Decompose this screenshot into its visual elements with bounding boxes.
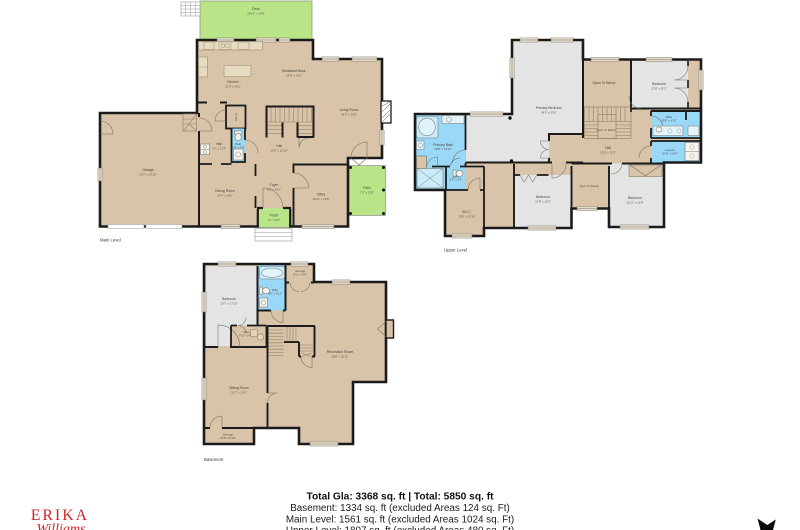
svg-text:15'0" x 16'1": 15'0" x 16'1" [225, 85, 241, 89]
svg-text:Basement: 1334 sq. ft (exclude: Basement: 1334 sq. ft (excluded Areas 12… [290, 503, 510, 514]
svg-text:24'0" x 22'6": 24'0" x 22'6" [541, 111, 557, 115]
svg-text:Basement: Basement [204, 457, 224, 462]
svg-text:Living Room: Living Room [340, 108, 359, 112]
svg-text:12'8" x 11'5": 12'8" x 11'5" [600, 151, 616, 155]
svg-text:Sitting Room: Sitting Room [229, 386, 249, 390]
svg-text:Open To Below: Open To Below [596, 128, 616, 132]
svg-text:Recreation Room: Recreation Room [327, 350, 354, 354]
svg-text:21'7" x 13'9": 21'7" x 13'9" [231, 391, 247, 395]
svg-text:12'4" x 14'6": 12'4" x 14'6" [217, 194, 233, 198]
svg-text:19'2" x 23'9": 19'2" x 23'9" [341, 113, 357, 117]
svg-text:Hall: Hall [276, 144, 282, 148]
svg-text:26'10" x 13'8": 26'10" x 13'8" [247, 12, 264, 16]
svg-text:Breakfast Nook: Breakfast Nook [282, 69, 305, 73]
svg-text:W.I.C.: W.I.C. [462, 210, 471, 214]
svg-text:12'8" x 13'0": 12'8" x 13'0" [535, 200, 551, 204]
svg-text:8'5" x 9'10": 8'5" x 9'10" [267, 188, 281, 192]
svg-text:Office: Office [317, 193, 326, 197]
svg-text:Main Level: 1561 sq. ft (exclu: Main Level: 1561 sq. ft (excluded Areas … [286, 515, 514, 526]
svg-text:Upper Level: 1807 sq. ft (excl: Upper Level: 1807 sq. ft (excluded Areas… [286, 526, 514, 530]
svg-text:25'8" x 30'11": 25'8" x 30'11" [331, 355, 348, 359]
svg-text:Primary Bedroom: Primary Bedroom [536, 106, 563, 110]
svg-text:Bedroom: Bedroom [222, 297, 236, 301]
svg-text:10'8" x 2'04": 10'8" x 2'04" [662, 152, 678, 156]
svg-text:10'7" x 17'10": 10'7" x 17'10" [220, 302, 237, 306]
svg-text:Open To Below: Open To Below [593, 81, 616, 85]
svg-text:7'1" x 6'2": 7'1" x 6'2" [268, 218, 281, 222]
svg-text:Main Level: Main Level [100, 238, 121, 243]
svg-text:Williams: Williams [36, 522, 86, 530]
svg-text:21'2" x 24'10": 21'2" x 24'10" [139, 173, 156, 177]
svg-text:Dining Room: Dining Room [215, 189, 235, 193]
svg-text:Kitchen: Kitchen [227, 80, 238, 84]
svg-text:10'8" x 16'10": 10'8" x 16'10" [434, 147, 451, 151]
svg-text:5'0" x 7'6": 5'0" x 7'6" [232, 146, 245, 150]
svg-text:Hall: Hall [216, 142, 222, 146]
svg-text:5'11" x 3'9": 5'11" x 3'9" [293, 273, 307, 277]
svg-text:13'0" x 12'10": 13'0" x 12'10" [270, 149, 287, 153]
svg-text:Deck: Deck [252, 7, 260, 11]
svg-text:Upper Level: Upper Level [444, 248, 467, 253]
svg-text:11'11" x 13'9": 11'11" x 13'9" [312, 197, 329, 201]
svg-text:10'6" x 6'10": 10'6" x 6'10" [220, 436, 236, 440]
svg-text:Hall: Hall [605, 146, 611, 150]
svg-text:Open To Below: Open To Below [579, 184, 599, 188]
svg-text:Foyer: Foyer [270, 183, 280, 187]
svg-text:Total Gla: 3368 sq. ft | Total: Total Gla: 3368 sq. ft | Total: 5850 sq.… [306, 492, 494, 503]
svg-text:Pantry: Pantry [234, 112, 238, 121]
svg-text:12'8" x 11'2": 12'8" x 11'2" [651, 87, 667, 91]
svg-text:5'6" x 4'5": 5'6" x 4'5" [450, 178, 463, 182]
svg-text:7'6" x 12'9": 7'6" x 12'9" [212, 147, 226, 151]
svg-text:Porch: Porch [270, 214, 279, 218]
svg-text:Garage: Garage [142, 168, 153, 172]
svg-text:8'0" x 9'11": 8'0" x 9'11" [268, 292, 282, 296]
svg-text:7'6" x 11'0": 7'6" x 11'0" [360, 191, 374, 195]
svg-text:Bedroom: Bedroom [628, 196, 642, 200]
svg-text:10'8" x 12'10": 10'8" x 12'10" [458, 215, 475, 219]
svg-text:Bedroom: Bedroom [536, 195, 550, 199]
svg-text:Patio: Patio [363, 186, 371, 190]
svg-text:19'8" x 13'2": 19'8" x 13'2" [286, 74, 302, 78]
svg-text:Bedroom: Bedroom [652, 82, 666, 86]
svg-text:10'8" x 4'10": 10'8" x 4'10" [661, 119, 677, 123]
svg-text:11'11" x 12'9": 11'11" x 12'9" [626, 201, 643, 205]
